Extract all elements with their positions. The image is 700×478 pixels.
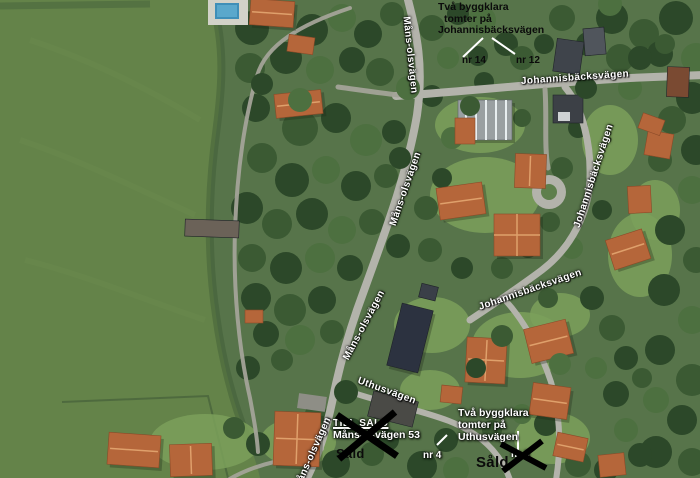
- pool-house: [249, 0, 298, 31]
- aerial-map-canvas[interactable]: Johannisbäcksvägen Johannisbäcksvägen Jo…: [0, 0, 700, 478]
- sold-label-right: Såld: [476, 454, 509, 471]
- house-roof: [436, 182, 489, 223]
- note-line: Två byggklara: [438, 2, 544, 14]
- house-roof: [514, 153, 546, 188]
- house-roof: [440, 385, 463, 404]
- house-roof: [529, 383, 574, 423]
- house-roof: [107, 432, 164, 471]
- sold-label-left: Såld: [336, 446, 365, 461]
- dark-house: [553, 38, 584, 74]
- note-johannisbacksvagen-lots: Två byggklara tomter på Johannisbäcksväg…: [438, 2, 544, 37]
- house-roof: [627, 185, 651, 213]
- for-sale-address: Månsolsvägen 53: [333, 429, 420, 441]
- house-roof: [169, 443, 215, 478]
- hut-roof: [245, 310, 263, 323]
- house-roof: [494, 214, 543, 259]
- for-sale-label: TILL SALU: [333, 418, 388, 429]
- barn-roof: [666, 67, 689, 98]
- note-uthusvagen-lots: Två byggklara tomter på Uthusvägen: [458, 407, 529, 443]
- house-roof: [287, 34, 315, 54]
- dark-shed: [553, 95, 583, 123]
- swimming-pool-water: [217, 5, 237, 17]
- dark-barn: [185, 219, 240, 238]
- note-line: tomter på: [458, 419, 529, 431]
- dark-house: [583, 27, 606, 56]
- lot-label-nr4: nr 4: [423, 450, 441, 461]
- note-line: Två byggklara: [458, 407, 529, 419]
- note-line: Johannisbäcksvägen: [438, 25, 544, 37]
- lot-label-nr12: nr 12: [516, 55, 540, 66]
- house-roof: [598, 453, 626, 478]
- lot-label-nr6: nr 6: [511, 449, 529, 460]
- hedge: [0, 4, 150, 6]
- note-line: Uthusvägen: [458, 431, 529, 443]
- lot-label-nr14: nr 14: [462, 55, 486, 66]
